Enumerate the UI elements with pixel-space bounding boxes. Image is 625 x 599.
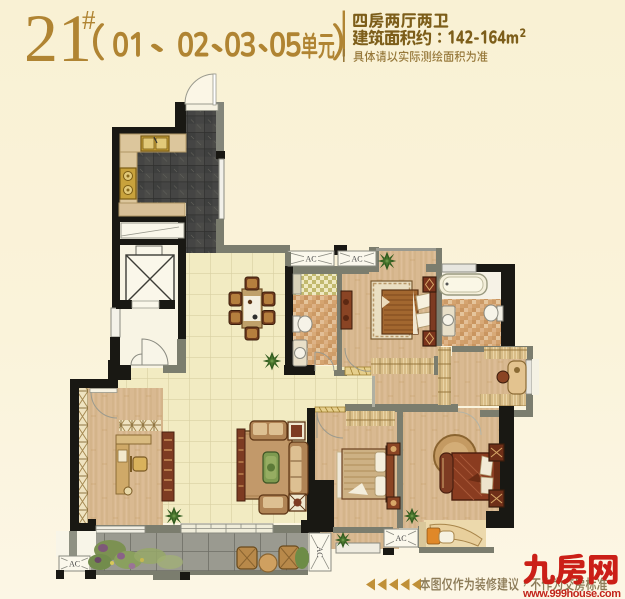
svg-text:AC: AC <box>351 255 362 264</box>
svg-text:AC: AC <box>315 546 324 557</box>
svg-text:#: # <box>82 5 96 35</box>
svg-text:AC: AC <box>69 560 80 569</box>
svg-text:AC: AC <box>395 534 406 543</box>
svg-text:AC: AC <box>305 255 316 264</box>
svg-text:www.999house.com: www.999house.com <box>522 588 621 599</box>
